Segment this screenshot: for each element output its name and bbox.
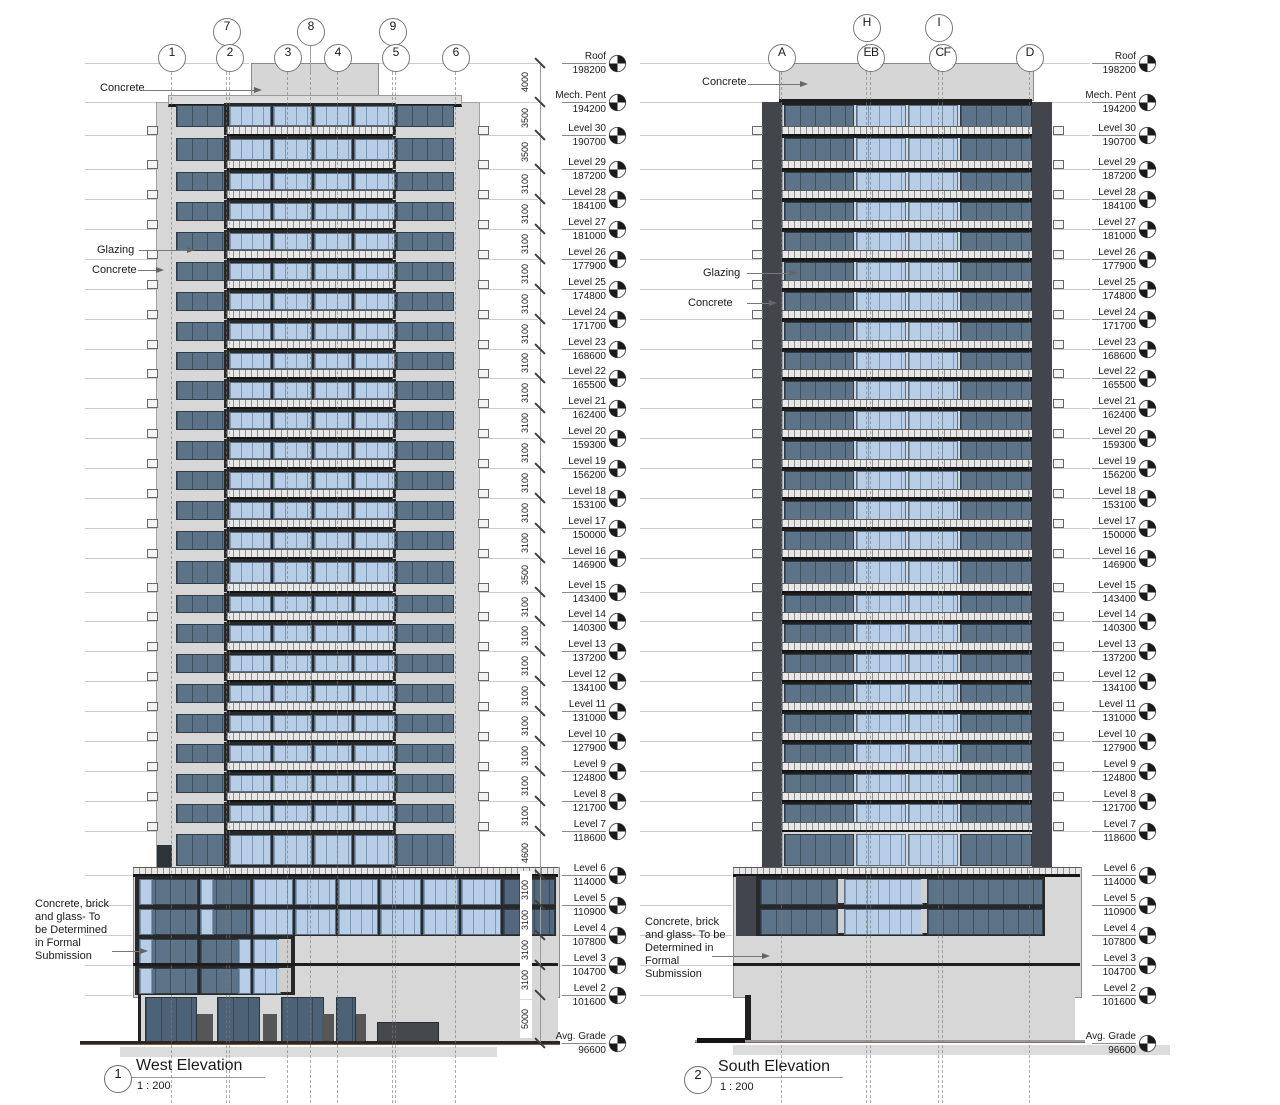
dim-label: 3100 [520,287,532,321]
window-light [273,532,312,549]
window-light [314,203,352,220]
balcony-tab [478,489,489,498]
level-name: Level 20 [542,426,606,439]
balcony-tab [147,672,158,681]
level-name: Level 27 [1072,217,1136,230]
balcony-tab [478,822,489,831]
window-light [908,138,958,161]
window-light [461,879,501,905]
entrance-door [356,1014,366,1043]
balcony-tab [147,822,158,831]
level-name: Level 28 [1072,187,1136,200]
entrance-door [322,1014,334,1043]
level-extension-line [85,408,156,409]
window-dark [176,202,226,221]
level-extension-line [85,135,156,136]
window-light [314,353,352,370]
window-dark [784,595,854,614]
level-name: Level 7 [1072,819,1136,832]
window-light [856,595,906,614]
window-dark [176,774,226,793]
level-value: 162400 [562,410,606,423]
level-value: 143400 [1092,594,1136,607]
balcony-tab [752,519,763,528]
balcony-railing [782,399,1032,409]
level-value: 121700 [562,803,606,816]
grid-line [229,72,230,1103]
window-dark [396,774,454,793]
level-marker-icon [608,160,627,179]
level-name: Level 24 [542,307,606,320]
window-dark [176,441,226,460]
grid-line [310,72,311,1103]
window-light [273,382,312,399]
balcony-tab [147,549,158,558]
balcony-tab [147,583,158,592]
level-value: 96600 [1092,1045,1136,1058]
level-marker-icon [608,369,627,388]
window-light [354,835,395,865]
level-marker-icon [1138,896,1157,915]
window-light [908,834,958,866]
level-name: Level 26 [542,247,606,260]
entrance-door [197,1014,213,1043]
window-light [295,909,336,935]
level-value: 118600 [562,833,606,846]
window-light [229,263,271,280]
grid-line [392,72,393,1103]
window-light [908,172,958,191]
window-dark [927,879,1043,905]
level-marker-icon [1138,220,1157,239]
window-light [314,745,352,762]
window-light [253,968,281,994]
leader-line [748,84,800,85]
storefront-window [217,997,260,1045]
window-light [354,625,395,642]
window-light [354,442,395,459]
level-name: Level 9 [1072,759,1136,772]
level-name: Level 8 [542,789,606,802]
window-light [908,292,958,311]
window-light [273,106,312,127]
balcony-tab [1053,459,1064,468]
window-dark [396,202,454,221]
level-marker-icon [1138,762,1157,781]
balcony-tab [147,126,158,135]
window-light [273,715,312,732]
window-dark [176,744,226,763]
level-value: 198200 [562,65,606,78]
level-marker-icon [608,926,627,945]
window-dark [176,381,226,400]
window-dark [960,834,1032,866]
level-extension-line [640,592,761,593]
window-light [314,173,352,190]
balcony-tab [1053,549,1064,558]
level-name: Level 17 [1072,516,1136,529]
level-name: Level 20 [1072,426,1136,439]
window-dark [960,262,1032,281]
window-light [856,262,906,281]
window-light [354,775,395,792]
window-dark [396,654,454,673]
level-extension-line [85,289,156,290]
balcony-tab [1053,190,1064,199]
balcony-tab [478,126,489,135]
window-light [354,382,395,399]
level-name: Mech. Pent [1072,90,1136,103]
balcony-tab [752,429,763,438]
level-extension-line [640,995,732,996]
level-value: 140300 [1092,623,1136,636]
level-name: Level 26 [1072,247,1136,260]
grid-bubble: I [925,14,953,42]
level-extension-line [640,199,761,200]
balcony-tab [478,340,489,349]
level-marker-icon [608,822,627,841]
window-light [229,472,271,489]
window-light [354,805,395,822]
level-extension-line [640,319,761,320]
window-dark [176,322,226,341]
balcony-tab [752,612,763,621]
south-ground-wall [745,995,1075,1043]
balcony-tab [1053,702,1064,711]
window-dark [784,172,854,191]
dim-label: 3100 [520,739,532,773]
balcony-railing [782,459,1032,469]
level-marker-icon [1138,126,1157,145]
window-dark [960,471,1032,490]
window-light [908,531,958,550]
balcony-tab [752,190,763,199]
window-light [354,263,395,280]
level-value: 101600 [562,997,606,1010]
level-marker-icon [608,986,627,1005]
window-light [273,745,312,762]
level-marker-icon [608,429,627,448]
level-extension-line [85,319,156,320]
balcony-tab [1053,429,1064,438]
level-value: 137200 [1092,653,1136,666]
window-light [354,203,395,220]
balcony-tab [147,732,158,741]
window-dark [927,909,1043,935]
level-extension-line [85,801,156,802]
window-light [856,232,906,251]
window-light [314,293,352,310]
window-dark [176,262,226,281]
window-light [229,323,271,340]
level-marker-icon [1138,926,1157,945]
balcony-railing [782,732,1032,742]
window-light [229,745,271,762]
window-light [908,774,958,793]
wall-edge [745,995,751,1043]
dim-label: 3500 [520,101,532,135]
balcony-tab [752,310,763,319]
window-dark [960,714,1032,733]
balcony-tab [1053,280,1064,289]
level-marker-icon [608,489,627,508]
grid-bubble: 6 [442,44,470,72]
window-dark [960,322,1032,341]
window-dark [760,909,838,935]
balcony-tab [147,280,158,289]
level-value: 101600 [1092,997,1136,1010]
level-marker-icon [608,549,627,568]
level-value: 114000 [1092,877,1136,890]
window-light [354,532,395,549]
level-extension-line [640,651,761,652]
level-name: Level 5 [542,893,606,906]
window-light [139,968,153,994]
level-name: Level 27 [542,217,606,230]
grid-line [866,72,867,1103]
window-light [856,172,906,191]
balcony-railing [782,220,1032,230]
balcony-tab [478,762,489,771]
dim-label: 3100 [520,526,532,560]
balcony-tab [752,160,763,169]
window-light [354,173,395,190]
level-name: Level 24 [1072,307,1136,320]
window-light [229,655,271,672]
level-name: Level 6 [1072,863,1136,876]
level-name: Level 17 [542,516,606,529]
level-value: 153100 [1092,500,1136,513]
balcony-tab [147,489,158,498]
level-marker-icon [608,792,627,811]
balcony-tab [147,190,158,199]
balcony-tab [752,369,763,378]
leader-arrow-icon [762,953,770,959]
window-dark [176,624,226,643]
window-light [273,835,312,865]
window-light [253,939,281,965]
level-extension-line [640,528,761,529]
window-light [908,471,958,490]
level-marker-icon [608,762,627,781]
balcony-tab [478,220,489,229]
window-light [908,654,958,673]
level-name: Level 9 [542,759,606,772]
window-light [856,292,906,311]
window-dark [176,531,226,550]
level-name: Level 29 [1072,157,1136,170]
level-marker-icon [608,126,627,145]
window-dark [784,322,854,341]
window-light [844,879,923,905]
grid-line [938,72,939,1103]
level-value: 190700 [562,137,606,150]
level-value: 110900 [562,907,606,920]
window-light [273,139,312,160]
level-value: 156200 [1092,470,1136,483]
level-marker-icon [1138,429,1157,448]
balcony-tab [478,459,489,468]
grid-bubble: 5 [382,44,410,72]
window-light [856,684,906,703]
level-extension-line [85,349,156,350]
window-light [314,775,352,792]
window-light [295,879,336,905]
grid-line [870,72,871,1103]
window-light [314,562,352,583]
level-marker-icon [608,54,627,73]
level-name: Level 14 [542,609,606,622]
level-marker-icon [1138,93,1157,112]
view-title-underline [706,1077,843,1078]
level-extension-line [640,801,761,802]
balcony-tab [752,672,763,681]
level-marker-icon [1138,190,1157,209]
window-light [354,745,395,762]
level3-band [733,963,1080,966]
level-marker-icon [608,732,627,751]
balcony-tab [478,399,489,408]
window-light [908,202,958,221]
level-extension-line [85,468,156,469]
window-light [314,625,352,642]
grid-bubble: 3 [274,44,302,72]
wall-edge [138,995,141,1043]
grid-line [337,72,338,1103]
level-name: Level 19 [542,456,606,469]
window-light [200,909,214,935]
window-light [229,715,271,732]
window-dark [784,441,854,460]
level-name: Level 2 [1072,983,1136,996]
level-name: Level 2 [542,983,606,996]
balcony-tab [478,612,489,621]
south-glazing-label: Glazing [703,267,740,279]
level-extension-line [640,711,761,712]
level-name: Level 16 [542,546,606,559]
south-view-number: 2 [684,1066,712,1094]
level-extension-line [85,498,156,499]
level-name: Level 22 [1072,366,1136,379]
level-marker-icon [1138,822,1157,841]
level-marker-icon [608,280,627,299]
level-marker-icon [608,612,627,631]
balcony-railing [782,190,1032,200]
south-view-title: South Elevation [718,1058,830,1076]
level-value: 124800 [1092,773,1136,786]
level-value: 194200 [562,104,606,117]
level-value: 156200 [562,470,606,483]
window-dark [784,561,854,584]
balcony-tab [478,549,489,558]
level-value: 187200 [1092,171,1136,184]
level-value: 162400 [1092,410,1136,423]
window-light [273,173,312,190]
balcony-tab [147,519,158,528]
leader-arrow-icon [769,300,777,306]
balcony-tab [1053,792,1064,801]
level-name: Level 13 [542,639,606,652]
level-marker-icon [1138,489,1157,508]
balcony-tab [1053,220,1064,229]
balcony-railing [782,792,1032,802]
window-light [908,624,958,643]
window-dark [396,172,454,191]
window-light [273,263,312,280]
balcony-tab [478,519,489,528]
balcony-tab [1053,126,1064,135]
level-value: 159300 [562,440,606,453]
balcony-tab [147,369,158,378]
level-name: Level 11 [542,699,606,712]
grid-bubble: EB [857,44,885,72]
dim-label: 3500 [520,135,532,169]
level-extension-line [85,651,156,652]
window-dark [176,292,226,311]
level-value: 96600 [562,1045,606,1058]
level-marker-icon [1138,519,1157,538]
window-light [273,655,312,672]
wall-panel [279,968,291,992]
balcony-tab [752,583,763,592]
window-light [273,775,312,792]
window-light [856,714,906,733]
window-light [229,625,271,642]
west-concrete-wall-label: Concrete [92,264,137,276]
balcony-tab [147,762,158,771]
level-extension-line [640,135,761,136]
grid-line [287,72,288,1103]
window-dark [760,879,838,905]
level-extension-line [85,199,156,200]
window-dark [784,411,854,430]
balcony-railing [782,672,1032,682]
balcony-tab [1053,642,1064,651]
window-light [273,233,312,250]
grid-bubble: A [768,44,796,72]
leader-arrow-icon [187,247,195,253]
window-dark [396,714,454,733]
leader-line [747,303,769,304]
window-light [856,561,906,584]
level-name: Level 10 [1072,729,1136,742]
level-value: 194200 [1092,104,1136,117]
window-dark [960,774,1032,793]
balcony-tab [752,489,763,498]
level-extension-line [640,558,761,559]
level-marker-icon [1138,399,1157,418]
window-light [354,412,395,429]
window-light [273,685,312,702]
level-marker-icon [1138,986,1157,1005]
window-light [380,909,421,935]
window-light [314,106,352,127]
level-value: 174800 [562,291,606,304]
window-dark [396,411,454,430]
level-extension-line [640,169,761,170]
window-light [314,442,352,459]
dim-label: 5000 [520,1000,532,1038]
window-light [908,441,958,460]
level-value: 181000 [562,231,606,244]
grid-bubble: 1 [158,44,186,72]
level-name: Level 4 [542,923,606,936]
grade-line [697,1038,745,1043]
balcony-railing [782,369,1032,379]
balcony-tab [147,612,158,621]
balcony-tab [478,429,489,438]
window-light [273,562,312,583]
